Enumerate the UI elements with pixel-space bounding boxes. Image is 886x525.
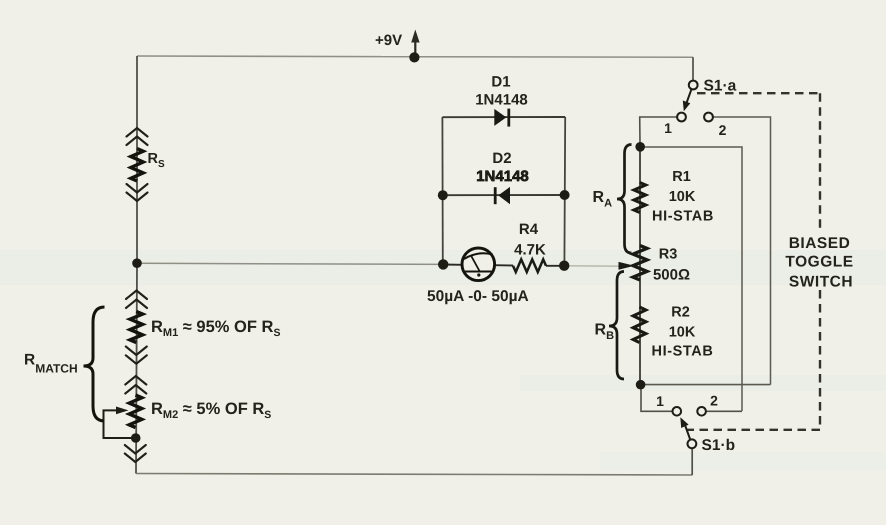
svg-text:HI-STAB: HI-STAB xyxy=(652,209,714,225)
svg-text:1: 1 xyxy=(656,393,664,409)
svg-text:+9V: +9V xyxy=(375,32,402,49)
svg-text:1: 1 xyxy=(664,120,672,136)
svg-text:SWITCH: SWITCH xyxy=(789,274,853,291)
svg-text:50µA -0- 50µA: 50µA -0- 50µA xyxy=(427,288,529,305)
svg-text:R2: R2 xyxy=(671,305,690,321)
svg-text:D2: D2 xyxy=(492,150,511,167)
svg-text:2: 2 xyxy=(719,122,727,138)
svg-text:S1·b: S1·b xyxy=(702,437,736,454)
svg-text:10K: 10K xyxy=(669,325,696,341)
svg-text:500Ω: 500Ω xyxy=(653,267,690,284)
svg-text:R4: R4 xyxy=(519,221,539,238)
svg-text:4.7K: 4.7K xyxy=(514,242,546,259)
svg-text:10K: 10K xyxy=(669,189,696,205)
svg-text:TOGGLE: TOGGLE xyxy=(785,254,853,271)
svg-text:S1·a: S1·a xyxy=(704,78,737,95)
svg-text:R3: R3 xyxy=(659,247,678,263)
svg-text:BIASED: BIASED xyxy=(789,235,851,252)
svg-text:D1: D1 xyxy=(491,74,510,91)
svg-text:R1: R1 xyxy=(672,169,691,185)
svg-text:1N4148: 1N4148 xyxy=(476,168,529,185)
svg-text:2: 2 xyxy=(710,393,718,409)
svg-text:1N4148: 1N4148 xyxy=(475,92,528,109)
svg-text:HI-STAB: HI-STAB xyxy=(652,344,714,360)
